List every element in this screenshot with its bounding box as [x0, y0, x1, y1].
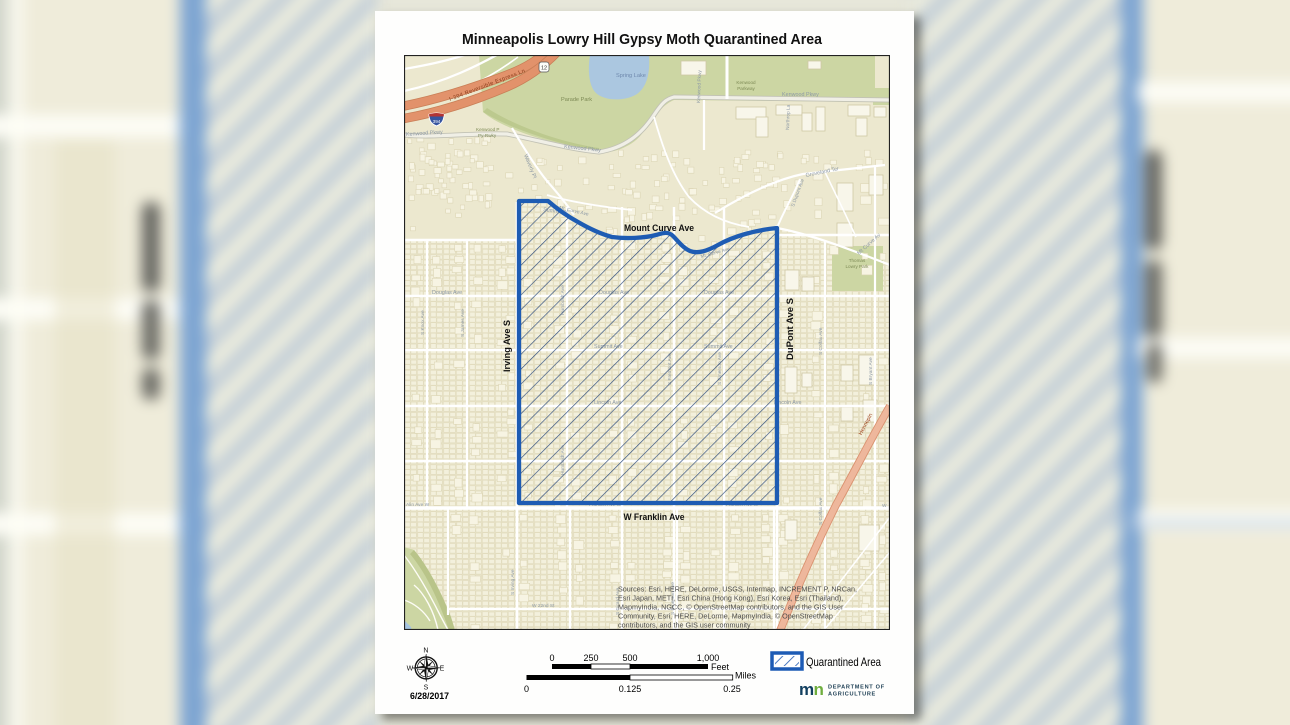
svg-text:m: m — [799, 680, 814, 699]
svg-text:Parade Park: Parade Park — [561, 97, 592, 103]
svg-text:S Bryant Ave: S Bryant Ave — [868, 357, 874, 385]
svg-text:Lowry Park: Lowry Park — [846, 264, 870, 269]
svg-text:0: 0 — [549, 653, 554, 663]
svg-text:Irving Ave S: Irving Ave S — [502, 320, 512, 372]
svg-text:Quarantined Area: Quarantined Area — [806, 655, 881, 669]
svg-text:Minneapolis Lowry Hill Gypsy M: Minneapolis Lowry Hill Gypsy Moth Quaran… — [462, 31, 823, 48]
svg-text:0: 0 — [524, 684, 529, 694]
svg-text:0.125: 0.125 — [619, 684, 642, 694]
svg-text:S Irving Ave: S Irving Ave — [510, 569, 516, 595]
svg-text:Community, Esri, HERE, DeLorme: Community, Esri, HERE, DeLorme, MapmyInd… — [618, 612, 833, 621]
svg-text:Douglas Ave: Douglas Ave — [432, 290, 462, 296]
svg-text:0.25: 0.25 — [723, 684, 741, 694]
svg-text:Kenwood: Kenwood — [736, 80, 756, 85]
svg-text:n: n — [814, 680, 824, 699]
svg-text:W: W — [882, 503, 887, 509]
svg-text:Feet: Feet — [711, 662, 730, 672]
svg-text:250: 250 — [583, 653, 598, 663]
svg-text:contributors, and the GIS user: contributors, and the GIS user community — [618, 621, 751, 630]
svg-text:Kenwood P: Kenwood P — [476, 127, 500, 132]
svg-text:6/28/2017: 6/28/2017 — [410, 691, 449, 701]
svg-text:Sources: Esri, HERE, DeLorme,: Sources: Esri, HERE, DeLorme, USGS, Inte… — [618, 585, 857, 594]
svg-text:Northrop La: Northrop La — [785, 104, 792, 130]
svg-text:Parkway: Parkway — [737, 86, 755, 91]
svg-text:S James Ave: S James Ave — [460, 309, 466, 337]
svg-text:DuPont Ave S: DuPont Ave S — [785, 298, 795, 360]
svg-text:W 22nd St: W 22nd St — [532, 603, 555, 609]
svg-text:E: E — [440, 666, 445, 673]
svg-text:S Knox Ave: S Knox Ave — [420, 310, 426, 335]
svg-text:W: W — [407, 666, 414, 673]
svg-text:Spring Lake: Spring Lake — [616, 73, 646, 79]
svg-text:394: 394 — [433, 119, 441, 124]
svg-text:DEPARTMENT OF: DEPARTMENT OF — [828, 685, 885, 691]
svg-text:MapmyIndia, NGCC, © OpenStreet: MapmyIndia, NGCC, © OpenStreetMap contri… — [618, 603, 844, 612]
svg-text:Mount Curve Ave: Mount Curve Ave — [624, 223, 694, 233]
svg-text:Py-Rwky: Py-Rwky — [478, 133, 497, 138]
svg-text:Alin Ave W: Alin Ave W — [406, 502, 430, 508]
svg-text:W Franklin Ave: W Franklin Ave — [624, 512, 685, 522]
svg-text:Kenwood Pkwy: Kenwood Pkwy — [696, 69, 703, 103]
svg-text:Miles: Miles — [735, 671, 757, 681]
svg-text:N: N — [423, 647, 428, 654]
svg-text:S Colfax Ave: S Colfax Ave — [818, 497, 824, 525]
svg-text:12: 12 — [541, 66, 547, 72]
svg-text:500: 500 — [622, 653, 637, 663]
svg-text:Thomas: Thomas — [849, 258, 866, 263]
svg-text:S Colfax Ave: S Colfax Ave — [818, 327, 824, 355]
svg-text:Kenwood Pkwy: Kenwood Pkwy — [782, 92, 819, 98]
svg-text:AGRICULTURE: AGRICULTURE — [828, 692, 876, 698]
svg-text:Esri Japan, METI, Esri China (: Esri Japan, METI, Esri China (Hong Kong)… — [618, 594, 843, 603]
